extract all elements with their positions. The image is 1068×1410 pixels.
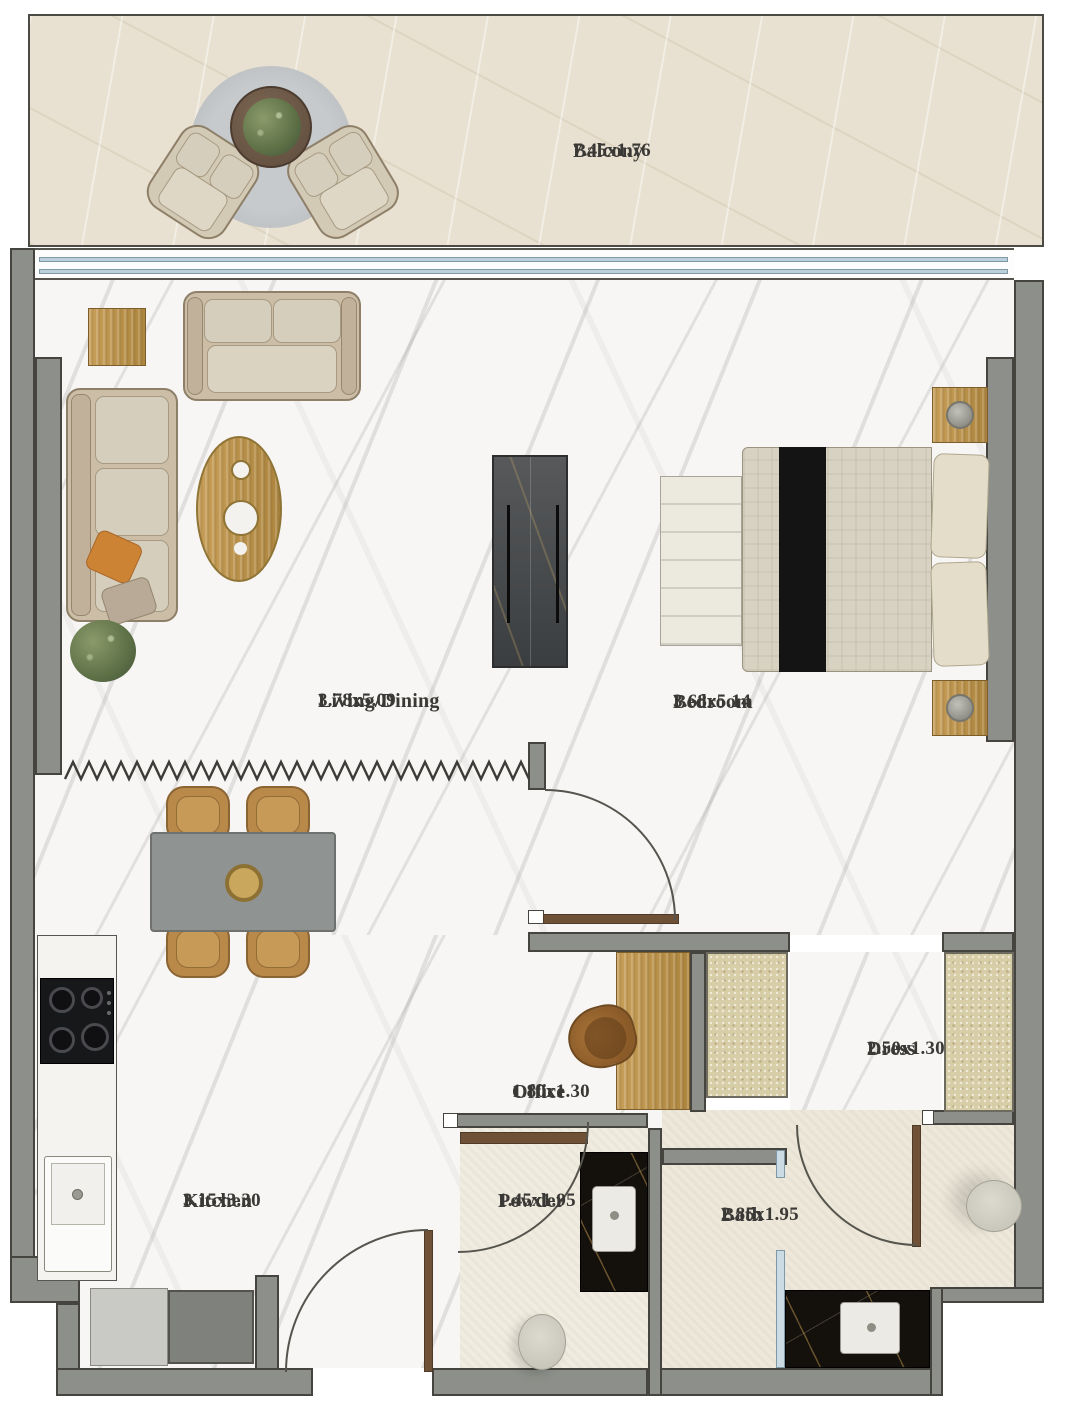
sink-faucet	[867, 1323, 876, 1332]
nightstand	[932, 387, 988, 443]
bed-pillow	[930, 453, 990, 559]
laundry-counter	[90, 1288, 168, 1366]
jamb-bedroom-door	[528, 910, 544, 924]
table-lamp	[946, 401, 974, 429]
jamb-powder-door	[443, 1113, 458, 1128]
sofa-armrest	[187, 297, 203, 395]
shower-glass	[776, 1250, 785, 1368]
sofa-back	[71, 394, 91, 616]
burner	[81, 987, 103, 1009]
wall-bottom-left	[56, 1368, 313, 1396]
cooktop-knob	[107, 991, 111, 995]
chair-seat	[176, 930, 220, 968]
wall-bedroomdoor-post	[528, 742, 546, 790]
bed-bench	[660, 476, 742, 646]
room-dims: 3.68x5.14	[673, 690, 751, 714]
sofa-cushion	[95, 468, 169, 536]
panel-divider	[530, 457, 531, 666]
room-dims: 1.80x1.30	[512, 1080, 590, 1104]
room-dims: 7.45x1.76	[573, 139, 651, 163]
table-lamp	[946, 694, 974, 722]
wall-entry-post	[255, 1275, 279, 1370]
sliding-door-panel	[492, 455, 568, 668]
balcony-plant	[243, 98, 301, 156]
side-table	[88, 308, 146, 366]
wall-bottomright-v	[930, 1287, 943, 1396]
bath-sink	[840, 1302, 900, 1354]
powder-toilet	[518, 1314, 566, 1370]
room-dims: 1.45x1.95	[498, 1189, 576, 1213]
burner	[81, 1023, 109, 1051]
wall-powder-bath-divider	[648, 1128, 662, 1396]
wall-bath-topright	[922, 1110, 1014, 1125]
wall-left-pillar	[35, 357, 62, 775]
sofa-armrest	[341, 297, 357, 395]
cooktop	[40, 978, 114, 1064]
bed-runner	[779, 447, 826, 672]
powder-sink	[592, 1186, 636, 1252]
door-handle	[556, 505, 559, 623]
shower-glass	[776, 1150, 785, 1178]
dress-closet-left	[706, 952, 788, 1098]
wall-corridor-right	[942, 932, 1014, 952]
room-dims: 2.50x1.30	[867, 1037, 945, 1061]
cooktop-knob	[107, 1011, 111, 1015]
bath-toilet	[966, 1180, 1022, 1232]
chair-seat	[256, 796, 300, 834]
sofa-cushion	[95, 396, 169, 464]
wall-bottomright-h	[930, 1287, 1044, 1303]
window-glass-line	[39, 257, 1008, 262]
living-plant	[70, 620, 136, 682]
floorplan-canvas: Balcony 7.45x1.76 Living/Dining 3.78x5.0…	[0, 0, 1068, 1410]
bath-door-leaf	[912, 1125, 921, 1247]
dining-centerpiece	[225, 864, 263, 902]
window-band	[35, 248, 1014, 280]
bed-pillow	[930, 561, 990, 667]
door-handle	[507, 505, 510, 623]
wall-powder-top	[443, 1113, 648, 1128]
wall-corridor-left	[528, 932, 790, 952]
powder-door-leaf	[460, 1132, 588, 1144]
entrance-door-leaf	[424, 1230, 433, 1372]
sofa-back-cushion	[204, 299, 272, 343]
chair-seat	[256, 930, 300, 968]
room-dims: 2.85x1.95	[721, 1203, 799, 1227]
room-dims: 3.78x5.09	[318, 689, 396, 713]
outside-patch	[10, 1303, 56, 1396]
coffee-table	[196, 436, 282, 582]
wall-left-step-lower	[56, 1303, 80, 1373]
table-decor-ring	[231, 460, 251, 480]
table-decor-dot	[234, 542, 247, 555]
kitchen-sink	[44, 1156, 112, 1272]
wall-right	[1014, 280, 1044, 1303]
wall-bottom-mid	[432, 1368, 648, 1396]
dress-closet-right	[944, 952, 1014, 1112]
nightstand	[932, 680, 988, 736]
cooktop-knob	[107, 1001, 111, 1005]
table-decor-ring	[223, 500, 259, 536]
bedroom-door-leaf	[543, 914, 679, 924]
jamb-bath-door	[922, 1110, 934, 1125]
dress-corridor-floor	[790, 952, 942, 1112]
wall-office-right	[690, 952, 706, 1112]
wall-left	[10, 248, 35, 1303]
wall-right-bed-pillar	[986, 357, 1014, 742]
sofa-back-cushion	[273, 299, 341, 343]
wall-bottom-bath	[648, 1368, 943, 1396]
loveseat-sofa	[183, 291, 361, 401]
sink-faucet	[72, 1189, 83, 1200]
chair-seat	[176, 796, 220, 834]
room-dims: 3.15x3.30	[183, 1189, 261, 1213]
chair-seat	[580, 1012, 631, 1063]
window-glass-line	[39, 269, 1008, 274]
burner	[49, 987, 75, 1013]
burner	[49, 1027, 75, 1053]
wall-bath-topleft	[662, 1148, 787, 1165]
bed	[742, 447, 932, 672]
sofa-seat	[207, 345, 337, 393]
washer-unit	[168, 1290, 254, 1364]
sink-faucet	[610, 1211, 619, 1220]
